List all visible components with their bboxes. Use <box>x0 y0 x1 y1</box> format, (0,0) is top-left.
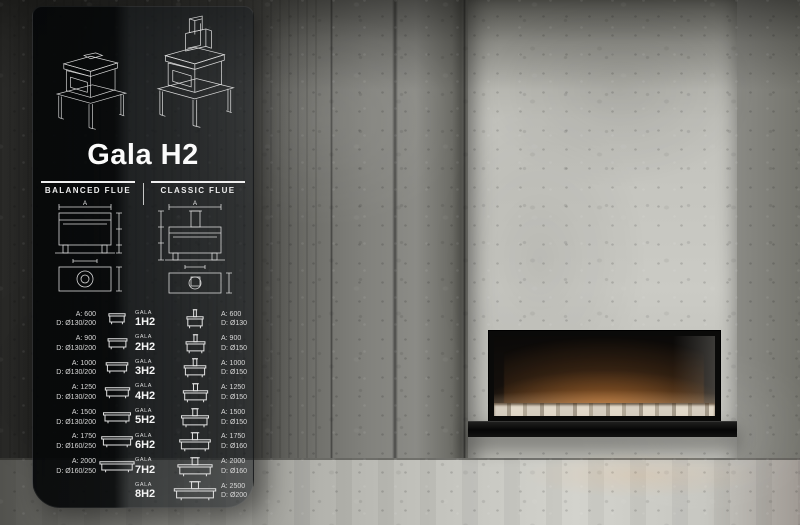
fireplace-front-flue-icon <box>183 358 207 378</box>
spec-panel: Gala H2 BALANCED FLUE CLASSIC FLUE A <box>32 6 254 508</box>
fireplace-front-flue-icon <box>176 457 214 477</box>
classic-flue-dimension-diagram: A <box>153 199 243 303</box>
fireplace-front-flue-icon <box>185 334 206 354</box>
model-name: GALA 4H2 <box>135 384 171 402</box>
model-name: GALA 6H2 <box>135 434 171 452</box>
classic-spec: A: 2000 D: Ø160 <box>219 457 247 477</box>
header-divider <box>143 183 144 205</box>
table-row-1h2: A: 600 D: Ø130/200 GALA 1H2 <box>33 307 253 332</box>
fire-media-stones <box>494 403 715 416</box>
svg-text:A: A <box>83 201 87 207</box>
fireplace-bench <box>468 421 737 437</box>
dimension-diagrams: A A <box>33 199 253 305</box>
balanced-spec: A: 600 D: Ø130/200 <box>39 310 99 330</box>
firebox-interior <box>494 336 715 416</box>
column-headers: BALANCED FLUE CLASSIC FLUE <box>33 181 253 195</box>
model-name: GALA 3H2 <box>135 360 171 378</box>
classic-spec: A: 1500 D: Ø150 <box>219 408 247 428</box>
classic-spec: A: 900 D: Ø150 <box>219 334 247 354</box>
balanced-flue-stove-drawing <box>47 43 131 135</box>
brochure-page: Gala H2 BALANCED FLUE CLASSIC FLUE A <box>0 0 800 525</box>
fireplace-front-icon <box>102 412 132 424</box>
table-row-5h2: A: 1500 D: Ø130/200 GALA 5H2 <box>33 405 253 430</box>
classic-spec: A: 1750 D: Ø160 <box>219 432 247 452</box>
fireplace-front-icon <box>105 362 129 374</box>
table-row-6h2: A: 1750 D: Ø160/250 GALA 6H2 <box>33 430 253 455</box>
fireplace-front-icon <box>108 313 126 325</box>
balanced-spec: A: 2000 D: Ø160/250 <box>39 457 99 477</box>
classic-spec: A: 1250 D: Ø150 <box>219 383 247 403</box>
product-drawings <box>33 7 253 135</box>
table-row-7h2: A: 2000 D: Ø160/250 GALA 7H2 <box>33 455 253 480</box>
balanced-flue-header: BALANCED FLUE <box>41 181 135 195</box>
balanced-spec: A: 1500 D: Ø130/200 <box>39 408 99 428</box>
classic-flue-header: CLASSIC FLUE <box>151 181 245 195</box>
balanced-spec: A: 1250 D: Ø130/200 <box>39 383 99 403</box>
linear-fireplace <box>489 331 720 421</box>
model-name: GALA 2H2 <box>135 335 171 353</box>
floor-fire-glow <box>520 452 760 498</box>
fireplace-front-flue-icon <box>186 309 204 329</box>
fireplace-front-flue-icon <box>178 432 212 452</box>
fireplace-front-icon <box>104 387 131 399</box>
balanced-flue-dimension-diagram: A <box>43 199 133 303</box>
classic-spec: A: 600 D: Ø130 <box>219 310 247 330</box>
balanced-spec: A: 900 D: Ø130/200 <box>39 334 99 354</box>
fireplace-front-icon <box>98 461 136 473</box>
fireplace-front-icon <box>107 338 128 350</box>
svg-text:A: A <box>193 201 197 207</box>
model-name: GALA 5H2 <box>135 409 171 427</box>
fireplace-flames <box>494 336 715 406</box>
model-name: GALA 1H2 <box>135 311 171 329</box>
balanced-spec: A: 1750 D: Ø160/250 <box>39 432 99 452</box>
fireplace-front-flue-icon <box>180 408 210 428</box>
classic-flue-stove-drawing <box>147 13 239 135</box>
table-row-2h2: A: 900 D: Ø130/200 GALA 2H2 <box>33 332 253 357</box>
fireplace-front-flue-icon <box>182 383 209 403</box>
classic-spec: A: 1000 D: Ø150 <box>219 359 247 379</box>
table-row-8h2: GALA 8H2 A: 2500 D: Ø200 <box>33 479 253 504</box>
model-name: GALA 7H2 <box>135 458 171 476</box>
fireplace-front-flue-icon <box>172 481 218 501</box>
page-title: Gala H2 <box>33 139 253 172</box>
balanced-spec: A: 1000 D: Ø130/200 <box>39 359 99 379</box>
fireplace-front-icon <box>100 436 134 448</box>
model-name: GALA 8H2 <box>135 483 171 501</box>
table-row-3h2: A: 1000 D: Ø130/200 GALA 3H2 <box>33 356 253 381</box>
model-table: A: 600 D: Ø130/200 GALA 1H2 <box>33 307 253 504</box>
table-row-4h2: A: 1250 D: Ø130/200 GALA 4H2 <box>33 381 253 406</box>
classic-spec: A: 2500 D: Ø200 <box>219 482 247 502</box>
